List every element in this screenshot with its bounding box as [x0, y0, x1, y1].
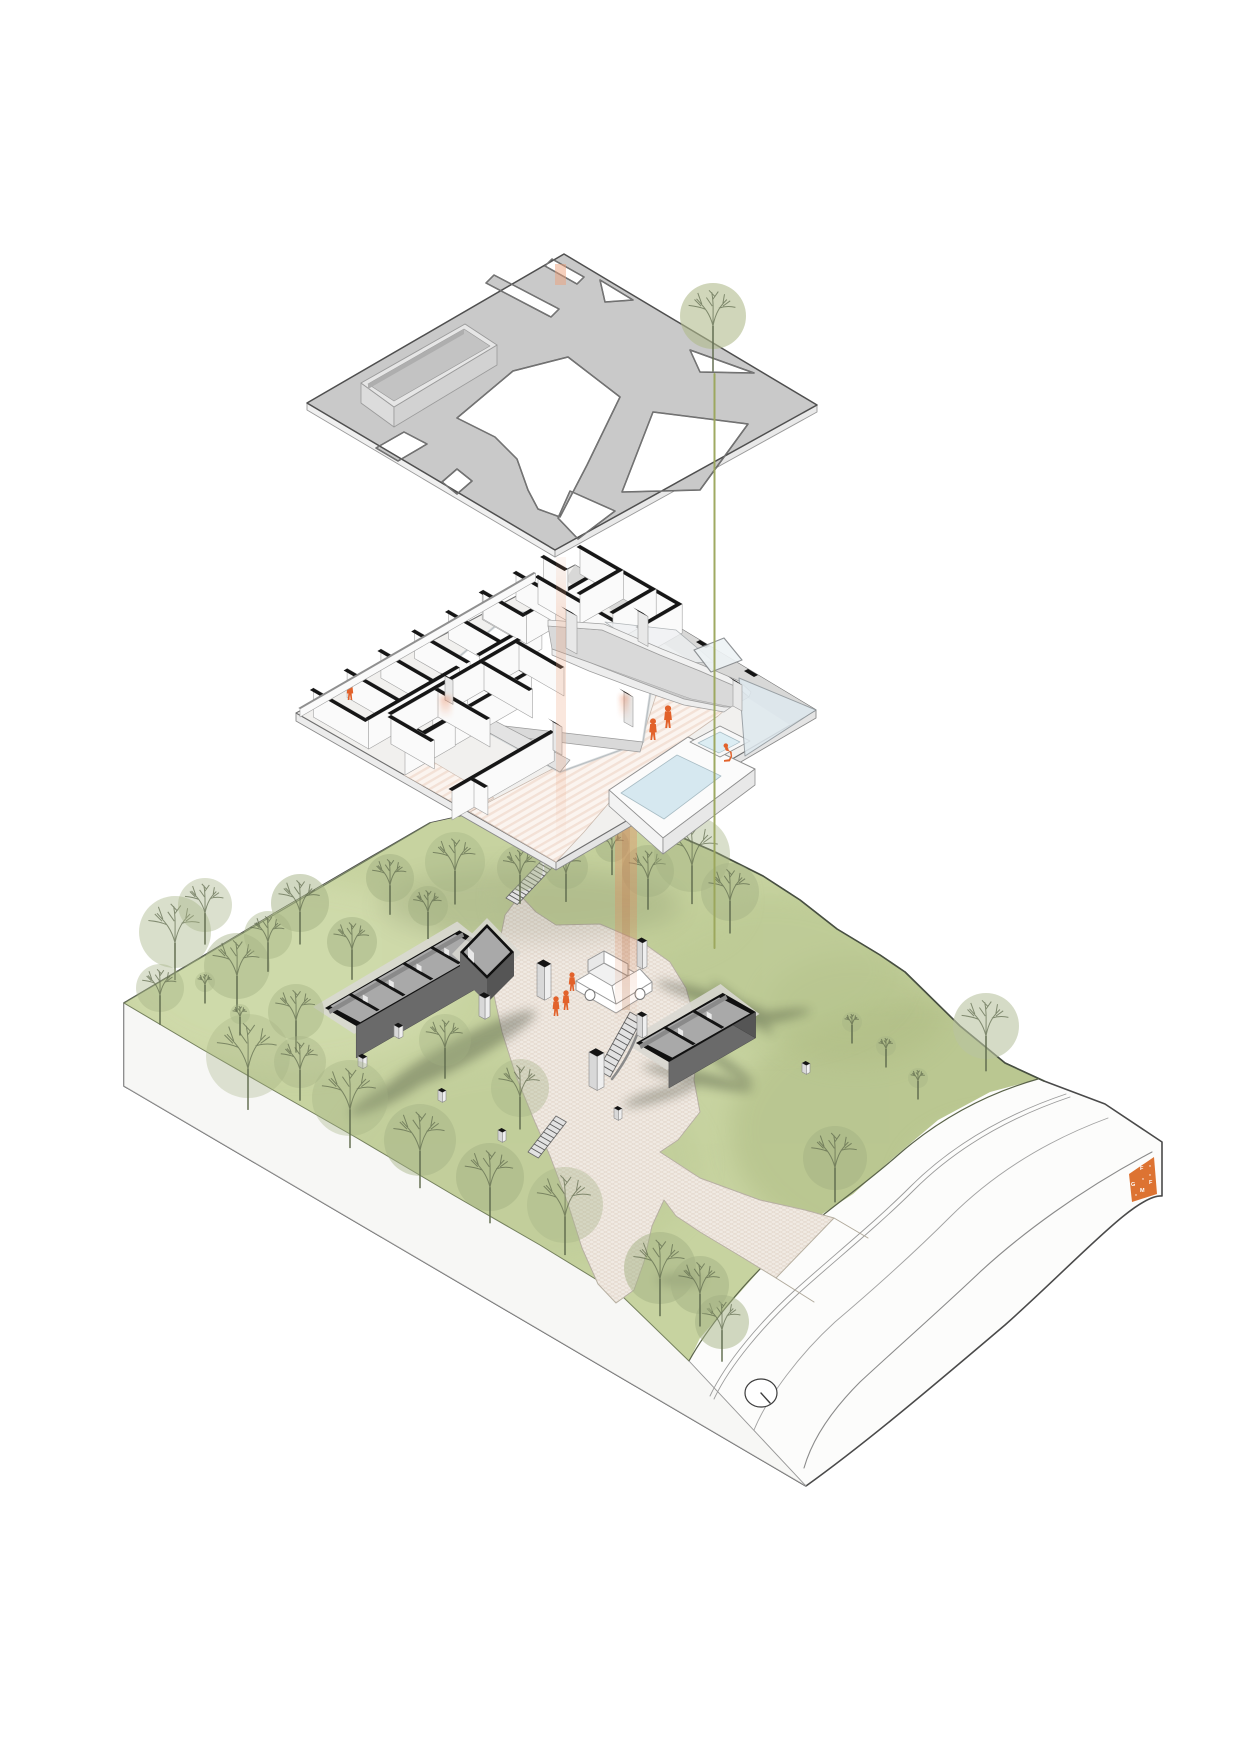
svg-text:G: G — [1131, 1182, 1135, 1188]
svg-text:M: M — [1140, 1188, 1145, 1194]
